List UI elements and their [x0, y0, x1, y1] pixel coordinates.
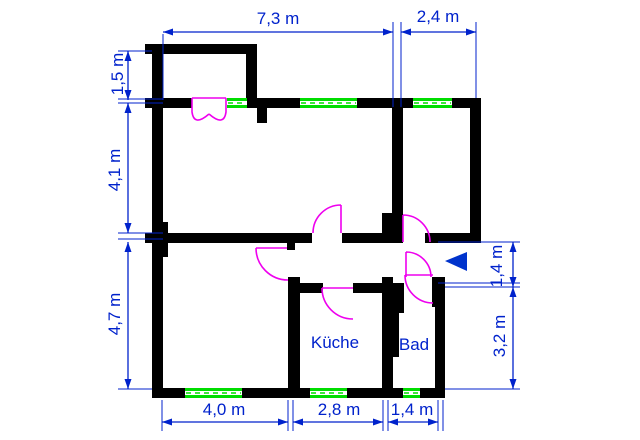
dim-line-entrance-height-arrow-end: [510, 277, 517, 287]
dim-line-annex-width-arrow-end: [466, 29, 476, 36]
bath-right-wall: [435, 277, 445, 398]
dim-line-room2-height-arrow-start: [125, 242, 132, 252]
room-label-kitchen: Küche: [305, 334, 365, 352]
left-wall-pilaster: [163, 222, 168, 257]
bottom-wall-seg-a: [152, 388, 185, 398]
dim-line-annex-width-arrow-start: [401, 29, 411, 36]
middle-wall-right: [342, 233, 382, 243]
left-exterior-wall: [152, 44, 163, 398]
top-wall-seg-c: [357, 98, 413, 108]
floorplan-drawing: [0, 0, 640, 440]
room-top-door: [313, 205, 341, 233]
kitchen-top-wall-b: [353, 283, 382, 293]
bottom-wall-seg-d: [420, 388, 445, 398]
right-exterior-wall-top: [470, 98, 481, 243]
dim-line-bath-height-arrow-start: [510, 287, 517, 297]
dim-line-room1-height-arrow-start: [125, 103, 132, 113]
dim-line-bath-width-arrow-start: [388, 419, 398, 426]
bath-pilaster-upper: [393, 283, 404, 313]
dimension-label-room2-height: 4,7 m: [106, 286, 124, 342]
dim-line-top-width-arrow-end: [383, 29, 393, 36]
dimension-label-livingroom-width: 4,0 m: [196, 401, 252, 419]
window-pier-stub: [257, 107, 267, 123]
dim-line-kitchen-width-arrow-start: [293, 419, 303, 426]
french-door-left-leaf: [192, 98, 226, 120]
dim-line-top-width-arrow-start: [163, 29, 173, 36]
dim-line-bath-width-arrow-end: [428, 419, 438, 426]
dimension-label-bath-width: 1,4 m: [384, 401, 440, 419]
dimension-label-top-width: 7,3 m: [248, 10, 308, 28]
top-wall-seg-b: [247, 98, 300, 108]
bath-west-wall: [382, 277, 393, 398]
dim-line-livingroom-width-arrow-start: [162, 419, 172, 426]
dim-line-room2-height-arrow-end: [125, 379, 132, 389]
dim-line-room1-height-arrow-end: [125, 223, 132, 233]
floorplan-canvas: 7,3 m 2,4 m 1,5 m 4,1 m 4,7 m 4,0 m 2,8 …: [0, 0, 640, 440]
dimension-label-annex-width: 2,4 m: [410, 8, 466, 26]
livingroom-door: [256, 248, 288, 280]
dimension-label-kitchen-width: 2,8 m: [311, 401, 367, 419]
entrance-arrow-icon: [445, 252, 467, 271]
room-label-bath: Bad: [394, 336, 434, 354]
bottom-wall-seg-c: [347, 388, 403, 398]
dimension-label-entrance-height: 1,4 m: [488, 238, 506, 294]
dim-line-entrance-height-arrow-start: [510, 242, 517, 252]
bath-door: [405, 275, 433, 303]
kitchen-left-wall: [288, 277, 300, 398]
middle-wall-left: [145, 233, 312, 243]
annex-left-wall: [392, 108, 403, 213]
dimension-label-bath-height: 3,2 m: [491, 308, 509, 364]
kitchen-top-wall-a: [300, 283, 323, 293]
dim-line-kitchen-width-arrow-end: [373, 419, 383, 426]
kitchen-door: [322, 288, 353, 319]
chimney-block: [382, 213, 403, 243]
entry-door: [406, 252, 431, 277]
dim-line-bath-height-arrow-end: [510, 379, 517, 389]
middle-wall-stub: [287, 243, 295, 250]
french-door-right-leaf: [209, 98, 226, 120]
dimension-label-room1-height: 4,1 m: [106, 142, 124, 198]
bottom-wall-seg-b: [242, 388, 310, 398]
dimension-label-balcony-depth: 1,5 m: [109, 46, 127, 102]
dim-line-livingroom-width-arrow-end: [278, 419, 288, 426]
